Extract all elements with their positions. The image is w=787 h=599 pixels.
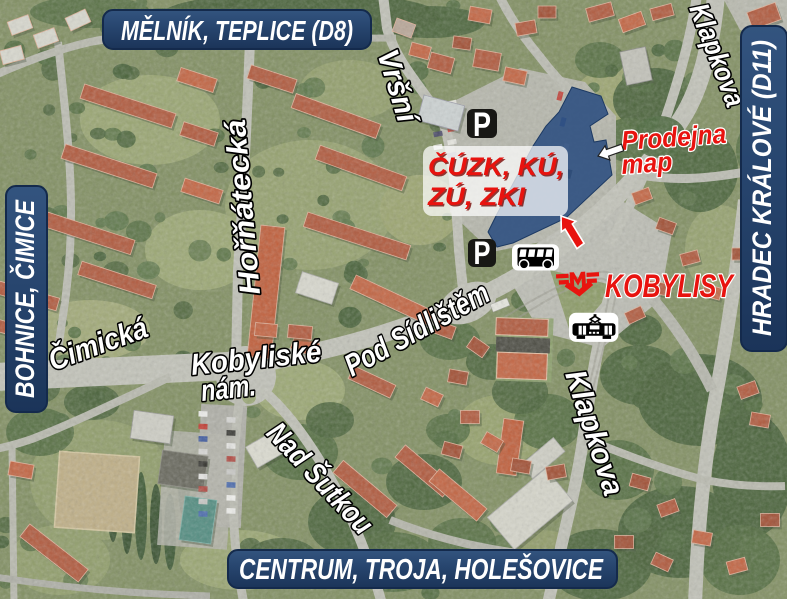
svg-text:P: P (474, 235, 491, 271)
svg-text:KOBYLISY: KOBYLISY (605, 268, 735, 304)
svg-text:MĚLNÍK, TEPLICE (D8): MĚLNÍK, TEPLICE (D8) (121, 15, 353, 46)
svg-text:HRADEC KRÁLOVÉ (D11): HRADEC KRÁLOVÉ (D11) (746, 40, 777, 336)
svg-text:BOHNICE, ČIMICE: BOHNICE, ČIMICE (9, 199, 40, 398)
svg-text:map: map (620, 147, 673, 180)
svg-text:CENTRUM, TROJA, HOLEŠOVICE: CENTRUM, TROJA, HOLEŠOVICE (239, 552, 604, 586)
svg-text:nám.: nám. (199, 369, 257, 408)
svg-text:P: P (473, 106, 491, 144)
svg-text:ZÚ, ZKI: ZÚ, ZKI (427, 182, 526, 211)
svg-text:ČÚZK, KÚ,: ČÚZK, KÚ, (428, 151, 564, 181)
